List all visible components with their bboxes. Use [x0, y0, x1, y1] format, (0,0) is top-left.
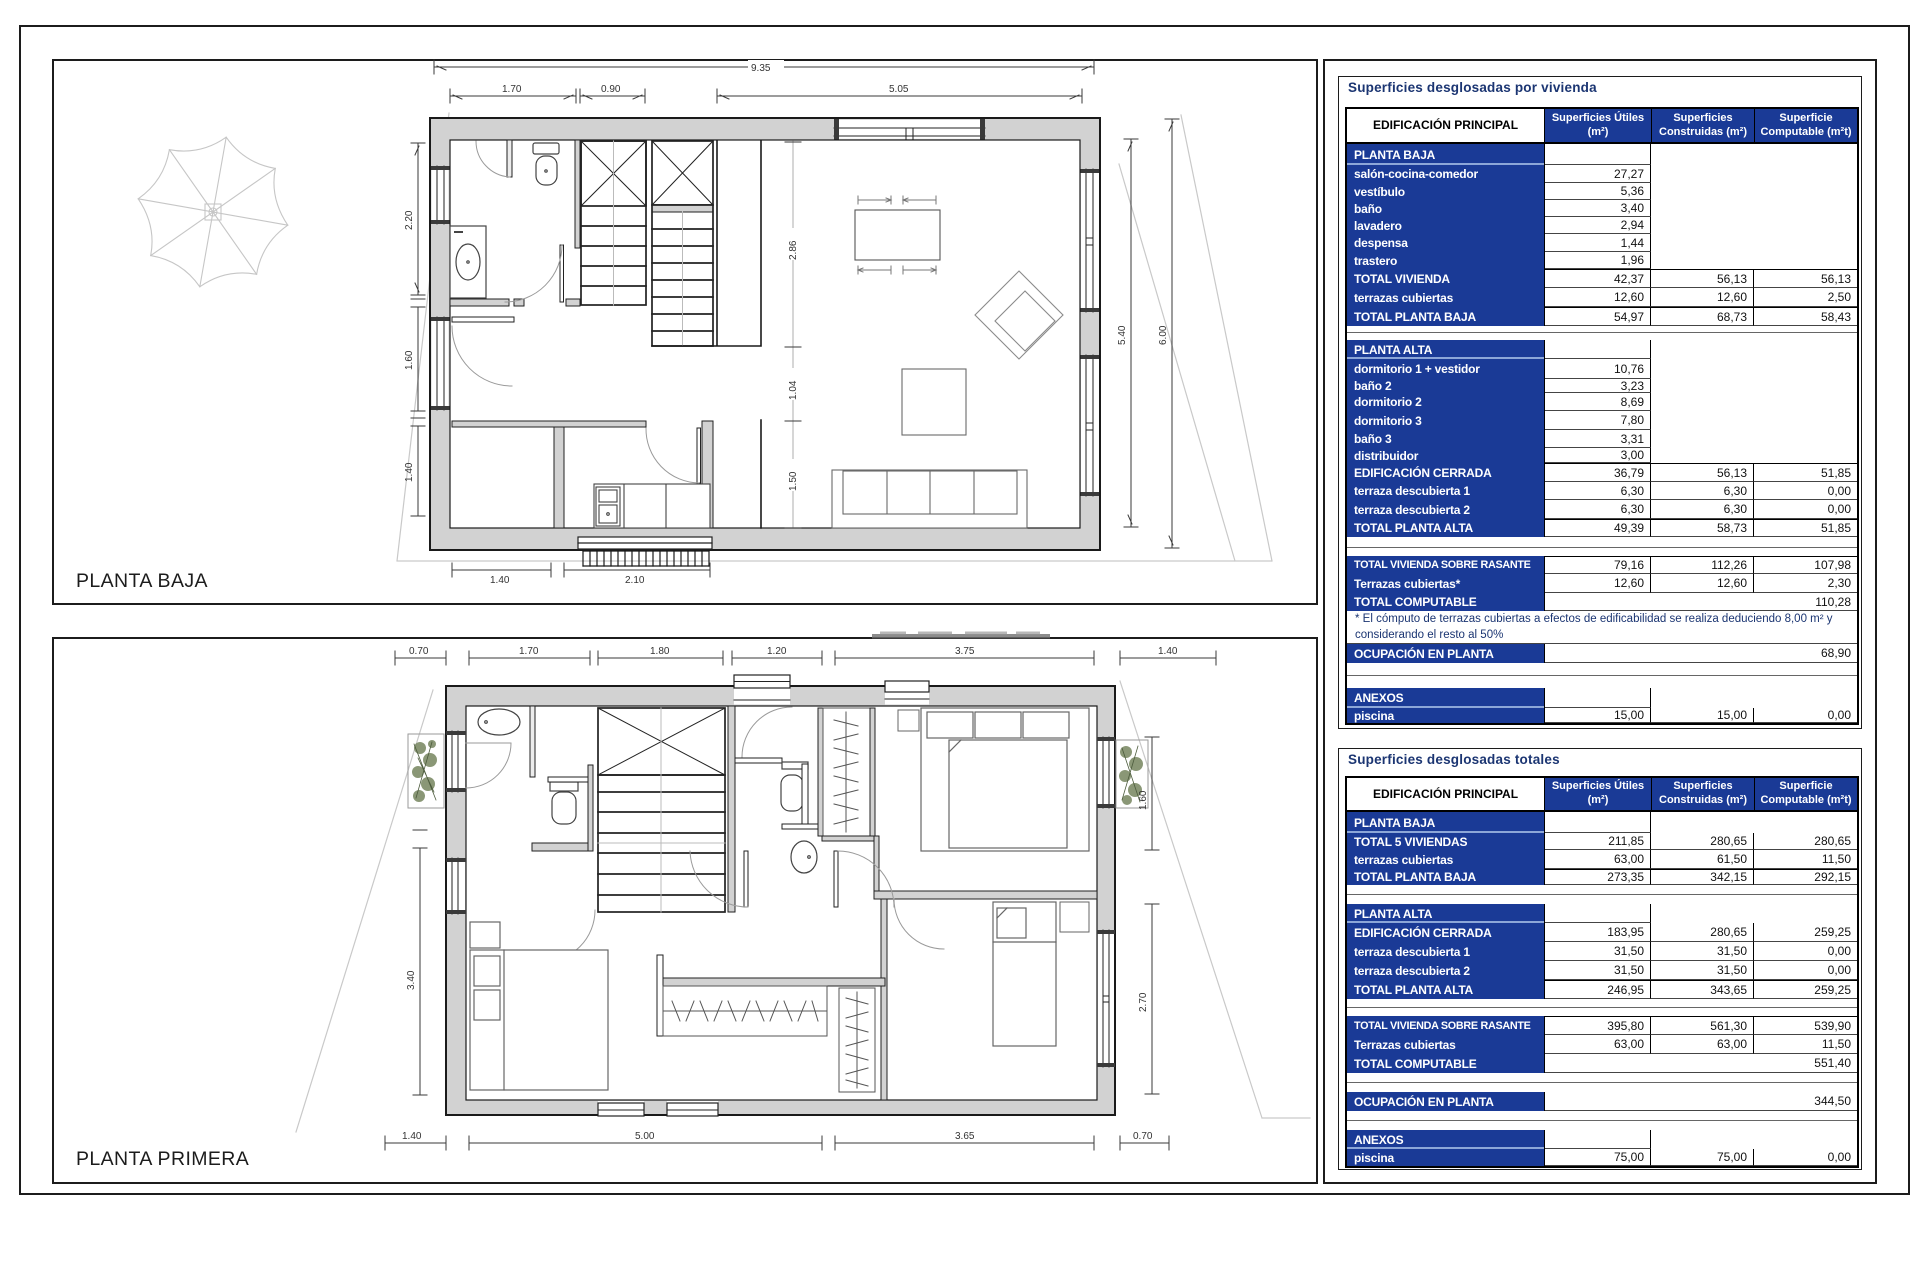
svg-text:1.70: 1.70 [502, 84, 522, 95]
svg-text:0.90: 0.90 [601, 84, 621, 95]
svg-text:1.50: 1.50 [788, 471, 799, 491]
svg-text:1.80: 1.80 [650, 646, 670, 657]
svg-text:1.40: 1.40 [404, 462, 415, 482]
svg-text:2.20: 2.20 [404, 210, 415, 230]
svg-text:PLANTA BAJA: PLANTA BAJA [76, 570, 208, 592]
svg-text:3.75: 3.75 [955, 646, 975, 657]
svg-text:1.40: 1.40 [490, 575, 510, 586]
svg-text:1.60: 1.60 [1138, 790, 1149, 810]
svg-text:1.40: 1.40 [402, 1131, 422, 1142]
svg-text:6.00: 6.00 [1158, 325, 1169, 345]
svg-text:5.05: 5.05 [889, 84, 909, 95]
svg-text:1.60: 1.60 [404, 350, 415, 370]
svg-text:1.04: 1.04 [788, 380, 799, 400]
svg-text:9.35: 9.35 [751, 63, 771, 74]
svg-text:2.10: 2.10 [625, 575, 645, 586]
svg-text:PLANTA PRIMERA: PLANTA PRIMERA [76, 1148, 249, 1170]
svg-text:2.86: 2.86 [788, 240, 799, 260]
svg-text:3.65: 3.65 [955, 1131, 975, 1142]
svg-text:1.20: 1.20 [767, 646, 787, 657]
svg-text:0.70: 0.70 [1133, 1131, 1153, 1142]
svg-text:2.70: 2.70 [1138, 992, 1149, 1012]
svg-text:5.00: 5.00 [635, 1131, 655, 1142]
svg-text:0.70: 0.70 [409, 646, 429, 657]
svg-text:1.70: 1.70 [519, 646, 539, 657]
svg-text:5.40: 5.40 [1117, 325, 1128, 345]
svg-text:3.40: 3.40 [406, 970, 417, 990]
svg-text:1.40: 1.40 [1158, 646, 1178, 657]
